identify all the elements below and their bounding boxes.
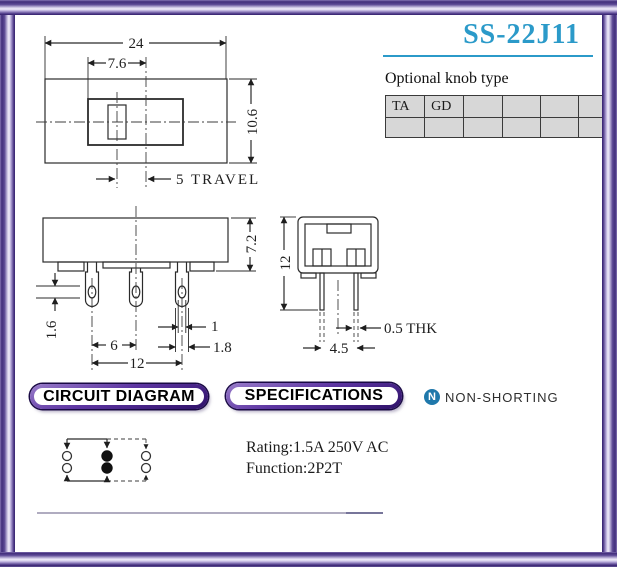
knob-cell (464, 96, 502, 118)
side-view: 12 0.5 THK 4.5 (278, 217, 437, 357)
dim-hole-width: 1 (211, 319, 219, 335)
non-shorting-label: NON-SHORTING (445, 390, 559, 405)
title-underline (383, 55, 593, 57)
knob-slot-side (327, 224, 351, 233)
knob-cell (425, 118, 464, 138)
dim-width: 24 (129, 36, 145, 52)
rating-line: Rating:1.5A 250V AC (246, 437, 388, 458)
circuit-diagram (63, 439, 151, 481)
pin-side-2 (354, 273, 358, 310)
contact-pole (102, 463, 112, 473)
dim-pin-width: 1.8 (213, 340, 232, 356)
contact-open (142, 452, 151, 461)
function-line: Function:2P2T (246, 458, 388, 479)
frame-border-bottom (0, 552, 617, 567)
contact-pole (102, 451, 112, 461)
dim-window: 7.6 (108, 56, 127, 72)
specifications-header: SPECIFICATIONS (226, 383, 402, 409)
dim-pin-gap: 4.5 (330, 341, 349, 357)
dim-travel: 5 TRAVEL (176, 172, 260, 188)
contact-open (63, 464, 72, 473)
knob-cell: TA (386, 96, 425, 118)
contact-open (63, 452, 72, 461)
non-shorting-icon: N (424, 389, 440, 405)
dim-thickness: 0.5 THK (384, 321, 437, 337)
dim-pin-span: 12 (130, 356, 145, 372)
knob-cell (464, 118, 502, 138)
knob-cell (386, 118, 425, 138)
frame-border-right (602, 15, 617, 552)
frame-border-top (0, 0, 617, 15)
frame-border-left (0, 15, 15, 552)
specifications-text: Rating:1.5A 250V AC Function:2P2T (246, 437, 388, 479)
optional-knob-label: Optional knob type (385, 70, 509, 88)
contact-open (142, 464, 151, 473)
dim-side-height: 12 (278, 256, 294, 271)
datasheet-page: 24 7.6 10.6 5 TRAVEL (0, 0, 617, 567)
switch-body-top (45, 79, 227, 163)
non-shorting-badge: N NON-SHORTING (424, 389, 559, 405)
table-row: TA GD (386, 96, 617, 118)
knob-type-table: TA GD (385, 95, 617, 138)
knob-cell (540, 118, 578, 138)
page-title: SS-22J11 (383, 19, 580, 51)
knob-cell: GD (425, 96, 464, 118)
dim-pin-pitch: 6 (110, 338, 118, 354)
top-view: 24 7.6 10.6 5 TRAVEL (36, 36, 261, 188)
dim-height: 10.6 (245, 108, 261, 135)
table-row (386, 118, 617, 138)
circuit-diagram-header: CIRCUIT DIAGRAM (30, 384, 208, 409)
dim-hole-height: 1.6 (44, 320, 60, 339)
knob-cell (540, 96, 578, 118)
dim-body-height: 7.2 (244, 235, 260, 254)
switch-body-front (43, 218, 228, 262)
front-view: 7.2 1.6 6 12 1 1.8 (36, 206, 260, 372)
knob-cell (502, 118, 540, 138)
knob-cell (502, 96, 540, 118)
technical-drawing: 24 7.6 10.6 5 TRAVEL (0, 0, 617, 567)
switch-body-side (298, 217, 378, 273)
pin-side-1 (320, 273, 324, 310)
